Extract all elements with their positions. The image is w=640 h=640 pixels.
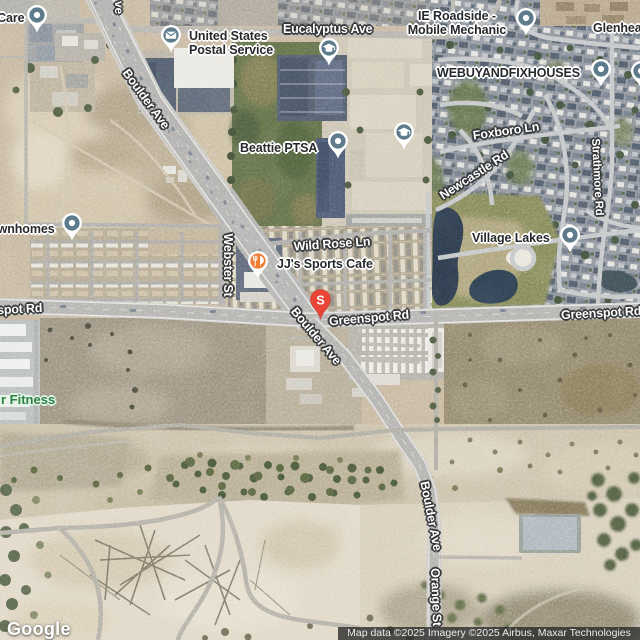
svg-text:S: S: [316, 293, 324, 307]
